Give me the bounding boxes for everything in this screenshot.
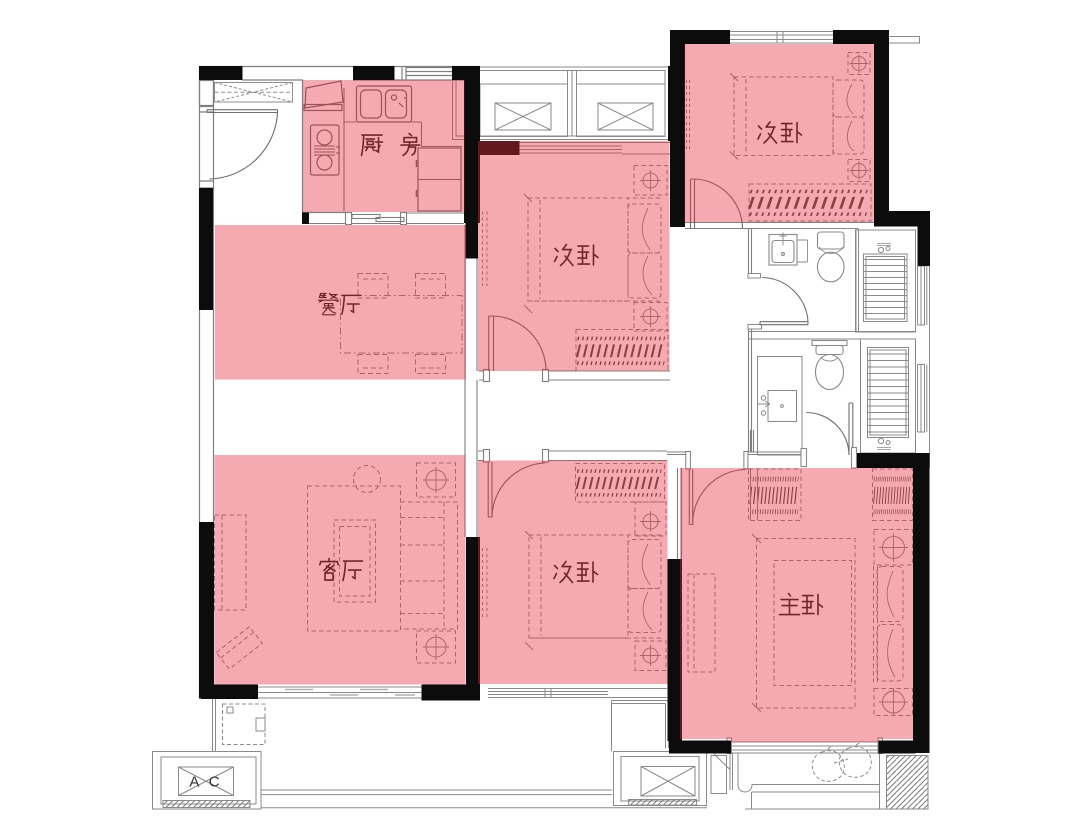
svg-text:A C: A C: [189, 774, 222, 791]
